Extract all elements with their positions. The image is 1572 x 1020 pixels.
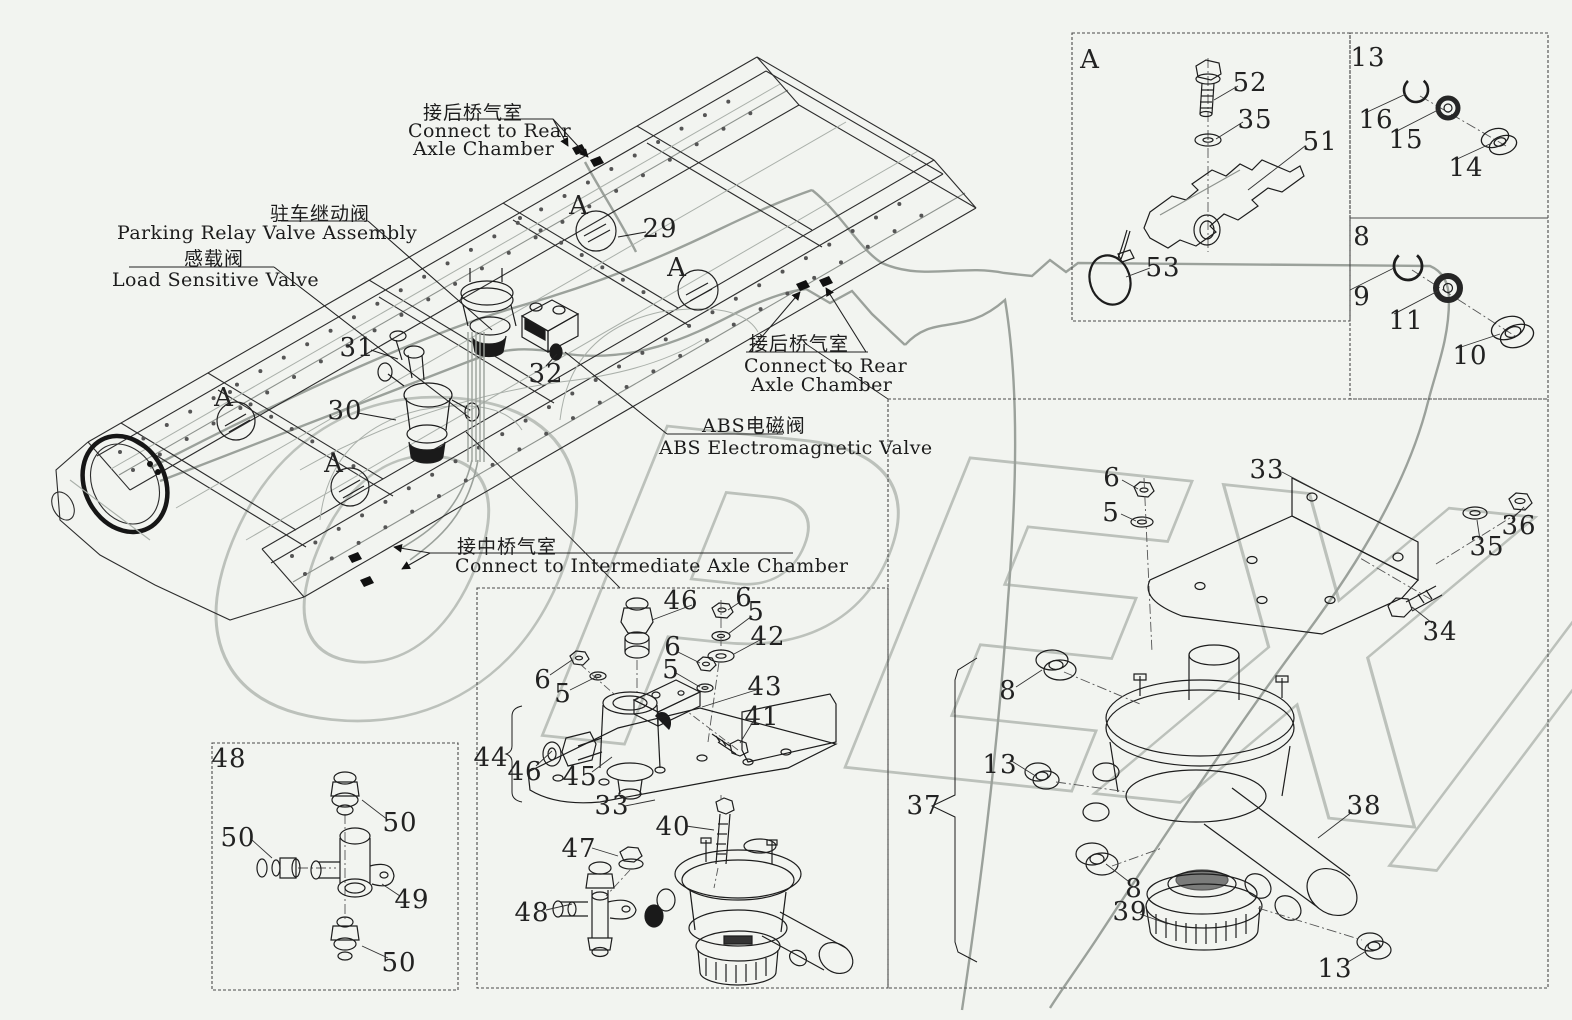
label-load-zh: 感载阀 (184, 244, 244, 271)
part-callout-33: 33 (594, 791, 629, 821)
t-fitting-48 (553, 862, 636, 957)
part-callout-46: 46 (507, 757, 542, 787)
box-a-parts (1083, 58, 1304, 310)
part-callout-13: 13 (1317, 954, 1352, 984)
part-callout-32: 32 (528, 359, 563, 389)
part-callout-35: 35 (1469, 532, 1504, 562)
label-rear-axle-side-en2: Axle Chamber (751, 374, 892, 396)
box-detail-a (1072, 33, 1350, 321)
label-rear-axle-top-en2: Axle Chamber (413, 138, 554, 160)
part-callout-9: 9 (1353, 282, 1371, 312)
part-callout-50: 50 (381, 948, 416, 978)
part-callout-47: 47 (561, 834, 596, 864)
part-callout-A: A (324, 449, 344, 479)
part-callout-33: 33 (1249, 455, 1284, 485)
part-callout-34: 34 (1422, 617, 1457, 647)
part-callout-5: 5 (662, 655, 680, 685)
part-callout-10: 10 (1452, 341, 1487, 371)
part-callout-A: A (569, 191, 589, 221)
part-callout-A: A (214, 383, 234, 413)
part-callout-6: 6 (534, 665, 552, 695)
part-callout-5: 5 (1102, 498, 1120, 528)
part-callout-50: 50 (220, 823, 255, 853)
part-callout-37: 37 (906, 791, 941, 821)
part-callout-8: 8 (1353, 222, 1371, 252)
part-callout-15: 15 (1388, 125, 1423, 155)
part-callout-42: 42 (750, 622, 785, 652)
part-callout-6: 6 (1103, 463, 1121, 493)
part-callout-40: 40 (655, 812, 690, 842)
part-callout-31: 31 (339, 333, 374, 363)
part-callout-53: 53 (1145, 253, 1180, 283)
part-callout-13: 13 (982, 750, 1017, 780)
part-callout-48: 48 (514, 898, 549, 928)
part-callout-14: 14 (1448, 153, 1483, 183)
part-callout-35: 35 (1237, 105, 1272, 135)
part-callout-39: 39 (1112, 897, 1147, 927)
t-body-49 (311, 828, 394, 897)
part-callout-36: 36 (1501, 511, 1536, 541)
part-callout-46: 46 (663, 586, 698, 616)
part-callout-44: 44 (473, 743, 508, 773)
part-callout-A: A (1080, 45, 1100, 75)
part-callout-29: 29 (642, 214, 677, 244)
label-load-en: Load Sensitive Valve (112, 269, 319, 291)
part-callout-51: 51 (1302, 127, 1337, 157)
part-callout-50: 50 (382, 808, 417, 838)
part-callout-45: 45 (562, 762, 597, 792)
cable-tie (1083, 230, 1136, 310)
part-callout-41: 41 (744, 702, 779, 732)
part-callout-38: 38 (1346, 791, 1381, 821)
label-abs-zh: ABS电磁阀 (702, 411, 806, 438)
label-abs-en: ABS Electromagnetic Valve (659, 437, 932, 459)
part-callout-11: 11 (1388, 306, 1423, 336)
part-callout-8: 8 (999, 676, 1017, 706)
label-parking-en: Parking Relay Valve Assembly (117, 222, 417, 244)
part-callout-49: 49 (394, 885, 429, 915)
part-callout-43: 43 (747, 672, 782, 702)
part-callout-52: 52 (1232, 68, 1267, 98)
part-callout-13: 13 (1350, 43, 1385, 73)
parts-diagram-page: OPEX/ (0, 0, 1572, 1020)
part-callout-48: 48 (211, 744, 246, 774)
part-callout-A: A (667, 253, 687, 283)
part-callout-30: 30 (327, 396, 362, 426)
part-callout-5: 5 (554, 679, 572, 709)
label-intermediate-en: Connect to Intermediate Axle Chamber (455, 555, 848, 577)
label-rear-axle-side-zh: 接后桥气室 (749, 329, 849, 356)
